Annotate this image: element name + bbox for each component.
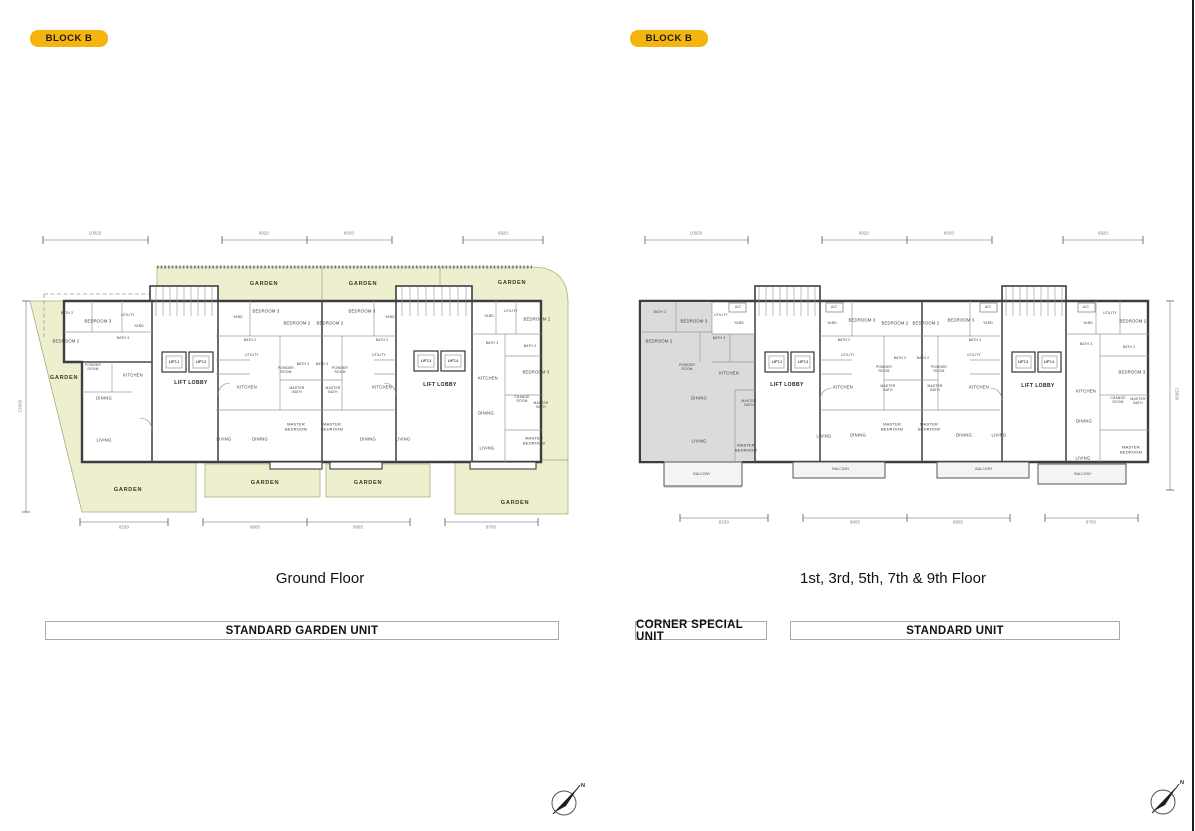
caption-ground-floor: Ground Floor: [276, 570, 364, 587]
legend-corner-special-unit: CORNER SPECIAL UNIT: [635, 621, 767, 640]
floor-plans-drawing: [0, 0, 1195, 831]
legend-standard-unit: STANDARD UNIT: [790, 621, 1120, 640]
ground-floor-plan: [30, 267, 568, 514]
legend-standard-garden-unit: STANDARD GARDEN UNIT: [45, 621, 559, 640]
upper-floor-plan: [640, 286, 1148, 488]
compass-north-label-left: N: [581, 783, 585, 789]
north-compass-right: [1151, 784, 1179, 814]
caption-upper-floors: 1st, 3rd, 5th, 7th & 9th Floor: [800, 570, 986, 587]
sheet-edge-line: [1192, 0, 1194, 831]
floorplan-sheet: BLOCK B BLOCK B: [0, 0, 1195, 831]
compass-north-label-right: N: [1180, 780, 1184, 786]
north-compass-left: [552, 785, 580, 815]
